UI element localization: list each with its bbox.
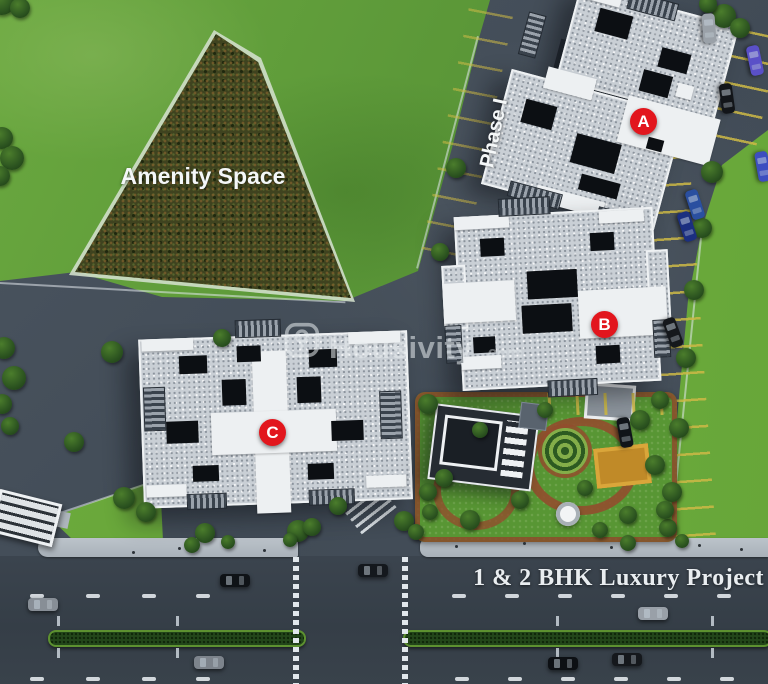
stairwell-block — [187, 493, 228, 510]
tree — [460, 510, 480, 530]
lane-tick — [711, 616, 714, 626]
spiral-garden-feature — [542, 428, 588, 474]
lane-tick — [57, 616, 60, 626]
car-windshield — [704, 19, 713, 26]
stairwell-block — [547, 378, 598, 398]
building-b-badge: B — [591, 311, 618, 338]
tree — [577, 480, 593, 496]
car-rear-window — [377, 566, 382, 575]
lane-marking — [611, 594, 625, 598]
lane-marking — [452, 594, 466, 598]
car-rear-window — [657, 609, 662, 618]
car-windshield — [619, 423, 629, 430]
building-b — [438, 194, 673, 401]
car-rear-window — [751, 63, 761, 70]
watermark-suffix: .com — [483, 343, 523, 363]
lane-marking — [720, 677, 734, 681]
lane-marking — [505, 594, 519, 598]
car-rear-window — [759, 170, 768, 176]
car-rear-window — [684, 229, 694, 237]
roof-opening — [480, 238, 505, 257]
tree — [408, 524, 424, 540]
tree — [419, 483, 437, 501]
watermark-brand: Housivity — [329, 330, 473, 366]
tree — [630, 410, 650, 430]
car-windshield — [666, 323, 677, 332]
pedestrian — [132, 551, 135, 554]
car-windshield — [680, 217, 690, 225]
pedestrian — [455, 545, 458, 548]
car-rear-window — [239, 576, 244, 585]
car-windshield — [226, 576, 232, 585]
median-hedge — [48, 630, 306, 647]
roof-opening — [527, 269, 578, 300]
lane-marking — [455, 677, 469, 681]
stairwell-block — [498, 196, 551, 217]
roof-opening — [596, 345, 621, 364]
lane-marking — [196, 677, 210, 681]
building-c-letter: C — [266, 423, 278, 443]
tree — [221, 535, 235, 549]
car — [28, 598, 58, 611]
tree — [537, 402, 553, 418]
building-b-terrace — [442, 280, 516, 324]
watermark: Housivity.com — [284, 322, 523, 366]
building-b-trim — [599, 209, 645, 223]
tree — [511, 491, 529, 509]
car — [220, 574, 250, 587]
car — [701, 13, 716, 44]
lane-tick — [711, 648, 714, 658]
car-windshield — [721, 89, 731, 96]
pedestrian — [740, 548, 743, 551]
roof-opening — [521, 303, 572, 334]
lane-marking — [86, 677, 100, 681]
lane-marking — [142, 677, 156, 681]
tree — [669, 418, 689, 438]
tree — [422, 504, 438, 520]
lane-tick — [556, 616, 559, 626]
tree — [1, 417, 19, 435]
crosswalk-dots — [402, 557, 408, 684]
clubhouse-skylight — [439, 415, 503, 472]
building-c-trim — [146, 484, 186, 497]
car-rear-window — [692, 207, 702, 215]
building-b-letter: B — [598, 315, 610, 335]
stairwell-block — [235, 319, 282, 339]
roof-opening — [236, 345, 261, 362]
tree — [64, 432, 84, 452]
lane-marking — [717, 594, 731, 598]
tree — [659, 519, 677, 537]
lane-marking — [508, 677, 522, 681]
tree — [675, 534, 689, 548]
roof-opening — [179, 355, 208, 374]
car — [612, 653, 642, 666]
tree — [592, 522, 608, 538]
tree — [418, 394, 438, 414]
pedestrian — [610, 546, 613, 549]
lane-marking — [30, 677, 44, 681]
car-windshield — [688, 195, 698, 203]
stairwell-block — [379, 391, 403, 440]
stairwell-block — [143, 387, 167, 432]
tree — [283, 533, 297, 547]
site-plan: Amenity Space Phase I A B C Housivity.co… — [0, 0, 768, 684]
car-rear-window — [567, 659, 572, 668]
tree — [684, 280, 704, 300]
tree — [329, 497, 347, 515]
lane-marking — [664, 594, 678, 598]
car-windshield — [749, 51, 759, 59]
pedestrian — [178, 547, 181, 550]
car-rear-window — [213, 658, 218, 667]
tree — [113, 487, 135, 509]
tree — [656, 501, 674, 519]
tree — [662, 482, 682, 502]
pedestrian — [523, 542, 526, 545]
car — [548, 657, 578, 670]
pedestrian — [698, 544, 701, 547]
tree — [184, 537, 200, 553]
tree — [730, 18, 750, 38]
roof-opening — [222, 379, 247, 406]
lane-marking — [614, 677, 628, 681]
car — [194, 656, 224, 669]
tree — [701, 161, 723, 183]
tree — [472, 422, 488, 438]
building-c-badge: C — [259, 419, 286, 446]
lane-marking — [86, 594, 100, 598]
car-rear-window — [621, 436, 631, 442]
tree — [303, 518, 321, 536]
tree — [645, 455, 665, 475]
sidewalk — [38, 538, 298, 557]
roof-opening — [166, 421, 199, 444]
car-rear-window — [47, 600, 52, 609]
median-hedge — [403, 630, 768, 647]
car — [638, 607, 668, 620]
car — [358, 564, 388, 577]
lane-marking — [558, 594, 572, 598]
tree — [619, 506, 637, 524]
tree — [101, 341, 123, 363]
building-a-badge: A — [630, 108, 657, 135]
pedestrian — [263, 549, 266, 552]
tree — [651, 391, 669, 409]
building-c-trim — [141, 338, 193, 352]
play-court — [593, 443, 652, 489]
lane-marking — [667, 677, 681, 681]
housivity-pin-logo-icon — [284, 322, 320, 358]
car-windshield — [757, 157, 767, 164]
phase-label: Phase I — [438, 78, 549, 188]
lane-marking — [196, 594, 210, 598]
car-windshield — [34, 600, 40, 609]
tree — [10, 0, 30, 18]
tree — [620, 535, 636, 551]
tree — [431, 243, 449, 261]
car-rear-window — [705, 32, 714, 38]
car-rear-window — [723, 102, 733, 108]
roof-opening — [331, 420, 364, 441]
gazebo — [556, 502, 580, 526]
tree — [2, 366, 26, 390]
lane-tick — [57, 648, 60, 658]
crosswalk-dots — [293, 557, 299, 684]
tree — [136, 502, 156, 522]
car-windshield — [200, 658, 206, 667]
tree — [676, 348, 696, 368]
car-windshield — [618, 655, 624, 664]
roof-opening — [297, 376, 322, 403]
car-rear-window — [631, 655, 636, 664]
amenity-space-label: Amenity Space — [88, 163, 318, 190]
lane-marking — [561, 677, 575, 681]
roof-opening — [308, 463, 335, 480]
tree — [435, 469, 453, 487]
lane-tick — [176, 616, 179, 626]
car-rear-window — [670, 335, 680, 343]
lane-tick — [176, 648, 179, 658]
car-windshield — [644, 609, 650, 618]
car-windshield — [554, 659, 560, 668]
roof-opening — [590, 232, 615, 251]
tree — [213, 329, 231, 347]
building-a-letter: A — [637, 112, 649, 132]
lane-marking — [142, 594, 156, 598]
building-c-trim — [366, 474, 406, 487]
car-windshield — [364, 566, 370, 575]
project-tagline: 1 & 2 BHK Luxury Project — [473, 565, 764, 592]
roof-opening — [193, 465, 220, 482]
